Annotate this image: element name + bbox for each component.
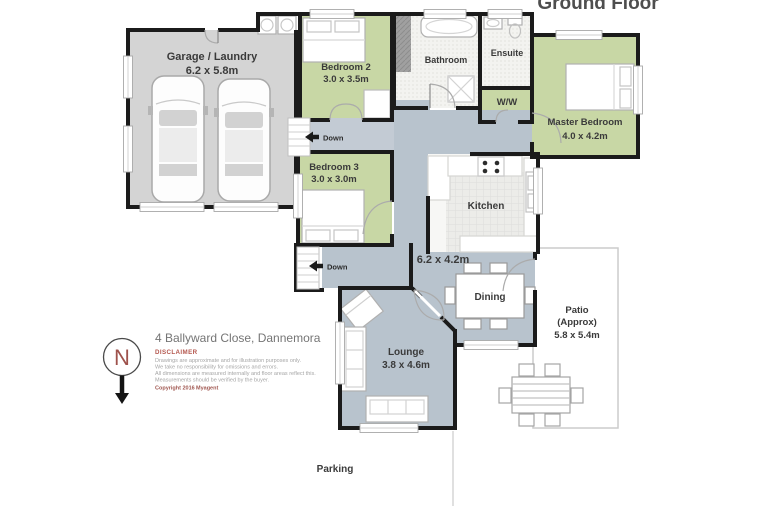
patio-qualifier: (Approx): [557, 317, 597, 328]
bathroom-shower-box: [448, 76, 474, 102]
wardrobe-label: W/W: [497, 97, 518, 108]
disclaimer-line: Drawings are approximate and for illustr…: [155, 358, 301, 364]
bed-bedroom2: [303, 18, 365, 62]
agency-name: Myagent: [196, 386, 218, 392]
compass-arrow-head-icon: [115, 393, 129, 404]
stairs-down-label: Down: [327, 263, 348, 272]
compass-north-label: N: [114, 345, 130, 370]
patio-label: Patio: [565, 305, 588, 316]
bedroom2-dims: 3.0 x 3.5m: [323, 74, 368, 85]
property-address: 4 Ballyward Close, Dannemora: [155, 331, 321, 345]
bedroom2-label: Bedroom 2: [321, 62, 371, 73]
bedroom3-label: Bedroom 3: [309, 162, 359, 173]
bed-master: [566, 64, 634, 110]
disclaimer-line: Measurements should be verified by the b…: [155, 378, 270, 384]
bedroom3-dims: 3.0 x 3.0m: [311, 174, 356, 185]
lounge-label: Lounge: [388, 347, 425, 358]
bathroom-label: Bathroom: [425, 55, 468, 65]
bedroom2-closet: [364, 90, 390, 118]
floor-plan-page: Down Down Garage / Laundry 6.2 x 5.8m Be…: [0, 0, 768, 512]
ensuite-label: Ensuite: [491, 48, 524, 58]
lounge-dims: 3.8 x 4.6m: [382, 360, 430, 371]
bathtub-icon: [421, 16, 477, 37]
copyright-text: Copyright 2016: [155, 386, 195, 392]
kitchen-dining-dims: 6.2 x 4.2m: [417, 254, 470, 266]
disclaimer-line: All dimensions are measured internally a…: [155, 371, 316, 377]
parking-label: Parking: [317, 464, 354, 475]
car-left-icon: [148, 76, 208, 202]
kitchen-label: Kitchen: [468, 201, 505, 212]
disclaimer-line: We take no responsibility for omissions …: [155, 365, 279, 371]
dining-label: Dining: [474, 292, 505, 303]
stairs-down-label: Down: [323, 134, 344, 143]
disclaimer-heading: DISCLAIMER: [155, 349, 198, 356]
master-bedroom-label: Master Bedroom: [548, 117, 623, 128]
page-title: Ground Floor: [537, 0, 659, 14]
bed-bedroom3: [302, 190, 364, 243]
shower-stall: [396, 16, 411, 72]
stove-icon: [478, 157, 504, 176]
patio-dims: 5.8 x 5.4m: [554, 330, 599, 341]
garage-label: Garage / Laundry: [167, 51, 258, 63]
master-bedroom-dims: 4.0 x 4.2m: [562, 131, 607, 142]
garage-dims: 6.2 x 5.8m: [186, 65, 239, 77]
address-block: 4 Ballyward Close, Dannemora DISCLAIMER …: [155, 331, 321, 392]
floor-plan-canvas: Down Down Garage / Laundry 6.2 x 5.8m Be…: [0, 0, 768, 512]
compass: N: [104, 339, 141, 405]
car-right-icon: [214, 79, 274, 201]
lounge-sofa-bottom: [366, 396, 428, 422]
hallway-vertical: [394, 100, 430, 254]
